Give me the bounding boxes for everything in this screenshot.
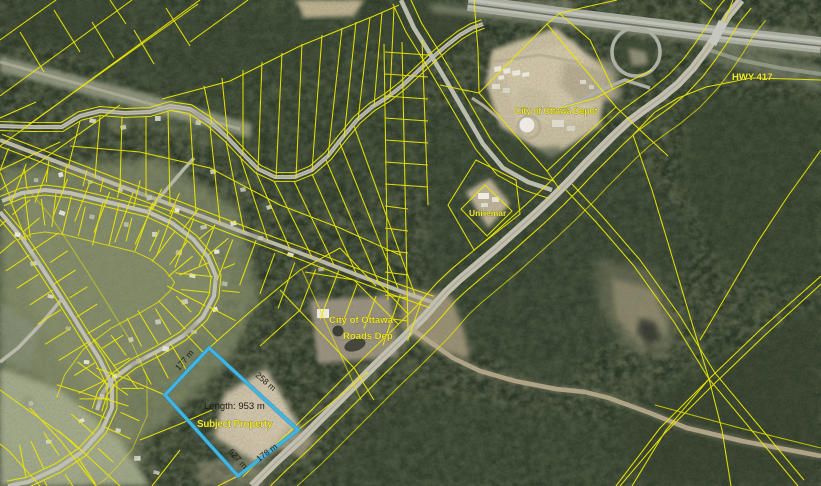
svg-text:Roads Dep: Roads Dep [343, 331, 393, 342]
svg-text:Subject Property: Subject Property [197, 419, 273, 430]
svg-text:City of Ottawa: City of Ottawa [329, 315, 394, 326]
svg-text:HWY 417: HWY 417 [732, 72, 772, 83]
svg-text:Uniremar: Uniremar [469, 208, 507, 218]
svg-text:Length: 953 m: Length: 953 m [204, 401, 265, 412]
svg-text:City of Ottawa Depot: City of Ottawa Depot [515, 106, 598, 116]
